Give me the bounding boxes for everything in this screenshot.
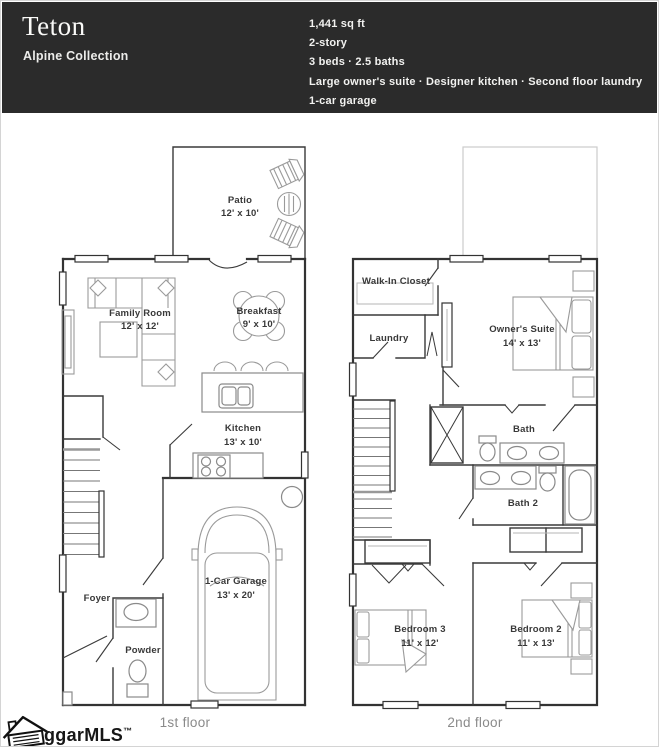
car <box>192 507 282 700</box>
room-label-kitchen: Kitchen <box>225 423 261 434</box>
bath-fixtures <box>479 436 564 463</box>
room-dims-breakfast: 9' x 10' <box>243 319 276 330</box>
room-dims-owners-suite: 14' x 13' <box>503 338 541 349</box>
room-label-foyer: Foyer <box>84 593 111 604</box>
room-label-bedroom2: Bedroom 2 <box>510 624 561 635</box>
floor2-caption: 2nd floor <box>447 715 502 730</box>
patio-furniture <box>269 156 305 250</box>
kitchen-fixtures <box>193 362 303 478</box>
room-label-patio: Patio <box>228 195 252 206</box>
room-dims-family-room: 12' x 12' <box>121 321 159 332</box>
floor1-caption: 1st floor <box>160 715 211 730</box>
room-label-walk-in-closet: Walk-In Closet <box>362 276 431 287</box>
floor1-stairs <box>63 439 104 557</box>
floorplan-drawing: Patio 12' x 10' Family Room 12' x 12' Br… <box>0 0 659 747</box>
floor1-plan: Patio 12' x 10' Family Room 12' x 12' Br… <box>60 147 309 730</box>
bath2-fixtures <box>475 466 595 524</box>
room-label-bedroom3: Bedroom 3 <box>394 624 445 635</box>
room-label-garage: 1-Car Garage <box>205 576 267 587</box>
floor2-stairs <box>353 400 395 537</box>
room-label-breakfast: Breakfast <box>236 306 282 317</box>
roof-ghost-outline <box>463 147 597 259</box>
room-label-bath2: Bath 2 <box>508 498 538 509</box>
family-room-furniture <box>62 278 175 386</box>
room-label-family-room: Family Room <box>109 308 171 319</box>
room-label-laundry: Laundry <box>370 333 409 344</box>
room-label-bath: Bath <box>513 424 535 435</box>
floor2-plan: Walk-In Closet Laundry Owner's Suite 14'… <box>350 147 598 730</box>
room-label-powder: Powder <box>125 645 161 656</box>
room-dims-garage: 13' x 20' <box>217 590 255 601</box>
watermark: ggarMLS™ <box>1 714 132 747</box>
room-dims-bedroom2: 11' x 13' <box>517 638 555 649</box>
room-dims-kitchen: 13' x 10' <box>224 437 262 448</box>
watermark-text: ggarMLS™ <box>44 725 132 745</box>
room-dims-patio: 12' x 10' <box>221 208 259 219</box>
room-label-owners-suite: Owner's Suite <box>489 324 555 335</box>
room-dims-bedroom3: 11' x 12' <box>401 638 439 649</box>
watermark-house-icon <box>1 714 49 747</box>
